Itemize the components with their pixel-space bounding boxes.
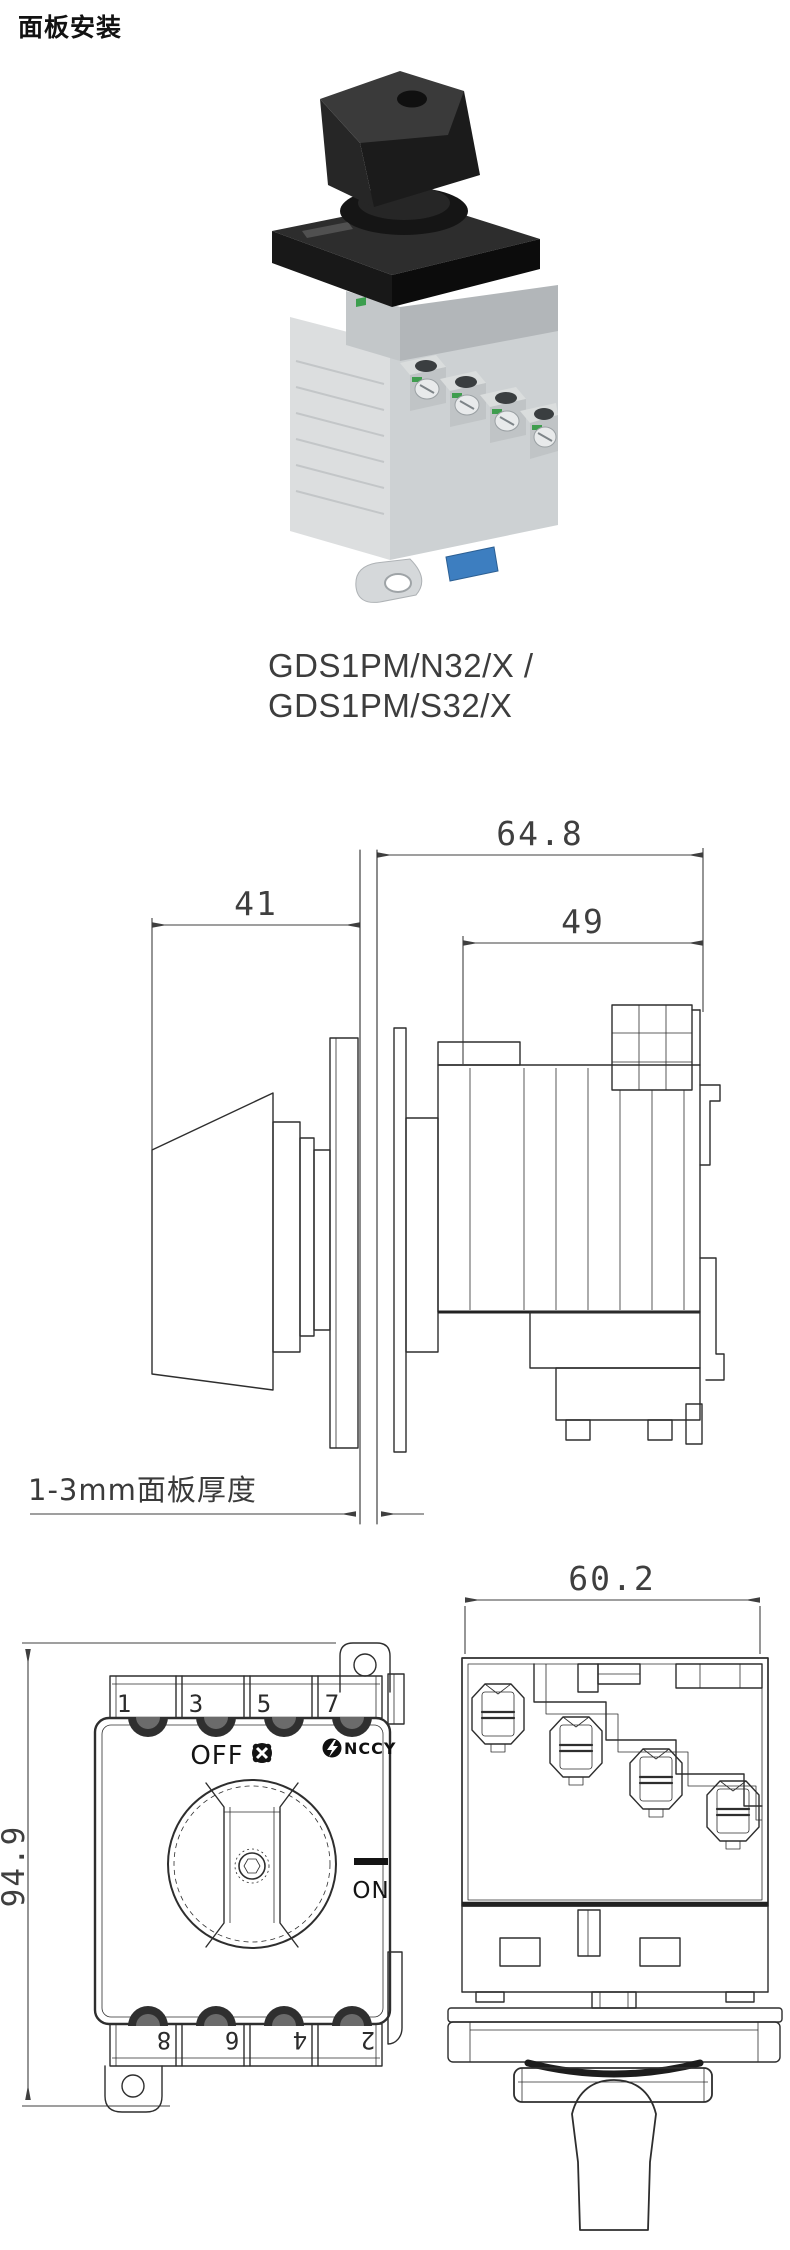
dim-41: 41 (234, 884, 278, 923)
rear-view-drawing: 60.2 (420, 1550, 790, 2250)
terminal-screws-top (128, 1717, 372, 1737)
panel-thickness-note: 1-3mm面板厚度 (28, 1473, 424, 1514)
model-line-2: GDS1PM/S32/X (268, 686, 534, 726)
rear-body (462, 1658, 768, 1906)
on-label: ON (352, 1878, 389, 1904)
terminal-strip-bottom: 8 6 4 2 (110, 2006, 382, 2066)
model-line-1: GDS1PM/N32/X / (268, 646, 534, 686)
product-photo (150, 55, 560, 615)
dim-94-9: 94.9 (0, 1825, 32, 1908)
brand-text: NCCY (344, 1739, 396, 1758)
on-position-bar (354, 1858, 388, 1865)
terminal-6: 6 (225, 2026, 239, 2054)
terminal-7: 7 (325, 1690, 339, 1718)
front-view-drawing: 94.9 1 3 5 7 (0, 1590, 420, 2250)
panel-note-text: 1-3mm面板厚度 (28, 1473, 257, 1507)
terminal-5: 5 (257, 1690, 271, 1718)
model-number: GDS1PM/N32/X / GDS1PM/S32/X (268, 646, 534, 727)
photo-mounting-ear (356, 559, 422, 602)
terminal-2: 2 (361, 2026, 375, 2054)
dim-64-8: 64.8 (496, 814, 583, 853)
terminal-8: 8 (157, 2026, 171, 2054)
off-label: OFF (190, 1741, 243, 1771)
terminal-strip-top: 1 3 5 7 (110, 1676, 382, 1737)
rear-terminal-screws (472, 1684, 759, 1849)
dimension-total-depth: 64.8 (377, 814, 703, 1012)
terminal-3: 3 (189, 1690, 203, 1718)
photo-din-clip (446, 547, 498, 581)
datasheet-page: 面板安装 (0, 0, 790, 2250)
photo-knob (320, 71, 480, 235)
dimension-body-depth: 49 (463, 902, 703, 1064)
brand-logo: NCCY (323, 1739, 397, 1759)
dimension-knob-depth: 41 (152, 884, 360, 1150)
terminal-4: 4 (293, 2026, 307, 2054)
front-knob (168, 1780, 336, 1948)
on-marker: ON (352, 1858, 389, 1904)
dim-49: 49 (561, 902, 605, 941)
side-body (394, 1005, 724, 1452)
padlock-icon (252, 1743, 272, 1763)
page-title: 面板安装 (18, 8, 122, 44)
side-knob (152, 1038, 358, 1448)
rear-lower-section (448, 1906, 782, 2230)
terminal-1: 1 (117, 1690, 131, 1718)
mounting-ear-bottom (105, 2066, 162, 2112)
dim-60-2: 60.2 (568, 1559, 655, 1598)
panel-lines (360, 850, 377, 1524)
side-view-drawing: 64.8 41 49 (0, 760, 790, 1550)
dimension-width: 60.2 (465, 1559, 760, 1654)
